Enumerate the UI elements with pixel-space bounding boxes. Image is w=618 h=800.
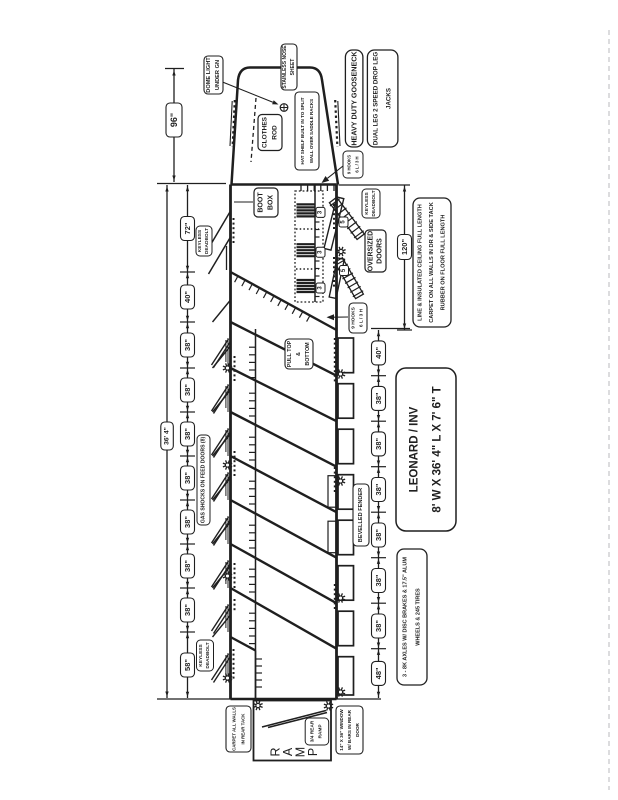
svg-text:40": 40"	[183, 291, 192, 303]
svg-text:38": 38"	[374, 574, 383, 586]
svg-text:DOME LIGHT: DOME LIGHT	[206, 57, 212, 93]
svg-text:38": 38"	[183, 339, 192, 351]
svg-text:RUBBER ON FLOOR FULL LENGTH: RUBBER ON FLOOR FULL LENGTH	[441, 215, 447, 311]
svg-text:IN REAR TACK: IN REAR TACK	[240, 713, 245, 745]
svg-text:PULL TOP: PULL TOP	[287, 340, 293, 367]
svg-text:9 HOOKS: 9 HOOKS	[347, 155, 352, 174]
svg-text:96": 96"	[169, 113, 179, 127]
svg-text:KEYLESS: KEYLESS	[197, 229, 203, 252]
svg-text:DEADBOLT: DEADBOLT	[204, 228, 210, 254]
svg-text:CLOTHES: CLOTHES	[261, 116, 268, 148]
svg-text:LEONARD / INV: LEONARD / INV	[409, 406, 421, 492]
svg-text:3/4 REAR: 3/4 REAR	[310, 720, 316, 742]
svg-text:WALL OVER SADDLE RACKS: WALL OVER SADDLE RACKS	[309, 99, 314, 163]
svg-text:40": 40"	[374, 347, 383, 359]
svg-text:BOOT: BOOT	[258, 192, 265, 213]
svg-text:CARPET ALL WALLS: CARPET ALL WALLS	[232, 707, 237, 751]
svg-text:48": 48"	[374, 667, 383, 679]
svg-text:BOX: BOX	[268, 195, 275, 211]
svg-text:38": 38"	[183, 560, 192, 572]
svg-text:36' 4": 36' 4"	[164, 427, 171, 445]
svg-text:38": 38"	[374, 438, 383, 450]
svg-text:DEADBOLT: DEADBOLT	[371, 190, 377, 216]
svg-text:KEYLESS: KEYLESS	[198, 644, 204, 667]
svg-text:9 HOOKS: 9 HOOKS	[351, 306, 357, 328]
svg-text:38": 38"	[374, 529, 383, 541]
svg-text:38": 38"	[183, 472, 192, 484]
svg-text:BOTTOM: BOTTOM	[305, 342, 311, 366]
svg-text:120": 120"	[400, 239, 409, 256]
svg-text:HEAVY DUTY GOOSENECK: HEAVY DUTY GOOSENECK	[350, 51, 359, 146]
svg-text:BEVELLED FENDER: BEVELLED FENDER	[358, 488, 364, 542]
svg-text:SHEET: SHEET	[290, 59, 296, 76]
svg-text:38": 38"	[183, 384, 192, 396]
svg-text:38": 38"	[374, 392, 383, 404]
svg-text:DOOR: DOOR	[355, 722, 360, 736]
svg-text:CARPET ON ALL WALLS IN DR & SI: CARPET ON ALL WALLS IN DR & SIDE TACK	[429, 201, 435, 322]
svg-text:3 - 8K AXLES W/ DISC BRAKES &: 3 - 8K AXLES W/ DISC BRAKES & 17.5" ALUM	[403, 557, 409, 677]
svg-text:W/ BARS IN REAR: W/ BARS IN REAR	[347, 709, 352, 750]
svg-text:JACKS: JACKS	[386, 88, 393, 109]
svg-text:GAS SHOCKS ON FEED DOORS (8): GAS SHOCKS ON FEED DOORS (8)	[201, 437, 207, 524]
svg-text:ROD: ROD	[272, 125, 279, 140]
svg-text:RAMP: RAMP	[318, 724, 324, 739]
svg-text:38": 38"	[183, 604, 192, 616]
svg-text:38": 38"	[374, 620, 383, 632]
svg-text:38": 38"	[374, 483, 383, 495]
svg-text:72": 72"	[183, 222, 192, 234]
svg-text:58": 58"	[183, 659, 192, 671]
svg-text:WHEELS & 245 TIRES: WHEELS & 245 TIRES	[416, 588, 422, 646]
svg-text:HAT SHELF BUILT IN TO SPLIT: HAT SHELF BUILT IN TO SPLIT	[300, 97, 305, 164]
svg-text:LINE & INSULATED CEILING FULL: LINE & INSULATED CEILING FULL LENGTH	[418, 204, 424, 321]
svg-text:38": 38"	[183, 516, 192, 528]
svg-text:OVERSIZED: OVERSIZED	[367, 231, 374, 271]
svg-text:UNDER GN: UNDER GN	[215, 60, 221, 90]
svg-text:6 L / 3 H: 6 L / 3 H	[355, 156, 360, 172]
svg-text:DUAL LEG 2 SPEED DROP LEG: DUAL LEG 2 SPEED DROP LEG	[373, 52, 380, 145]
svg-text:STAINLESS NOSE: STAINLESS NOSE	[282, 45, 288, 89]
svg-text:DEADBOLT: DEADBOLT	[205, 642, 211, 668]
svg-text:DOORS: DOORS	[377, 238, 384, 264]
svg-text:6 L / 3 H: 6 L / 3 H	[359, 308, 365, 327]
svg-text:38": 38"	[183, 428, 192, 440]
svg-text:&: &	[296, 352, 302, 356]
svg-text:8' W X 36' 4" L X 7' 6" T: 8' W X 36' 4" L X 7' 6" T	[432, 386, 444, 512]
svg-text:P: P	[306, 748, 320, 756]
svg-text:KEYLESS: KEYLESS	[364, 192, 370, 215]
svg-text:14" X 36" WINDOW: 14" X 36" WINDOW	[339, 709, 344, 751]
